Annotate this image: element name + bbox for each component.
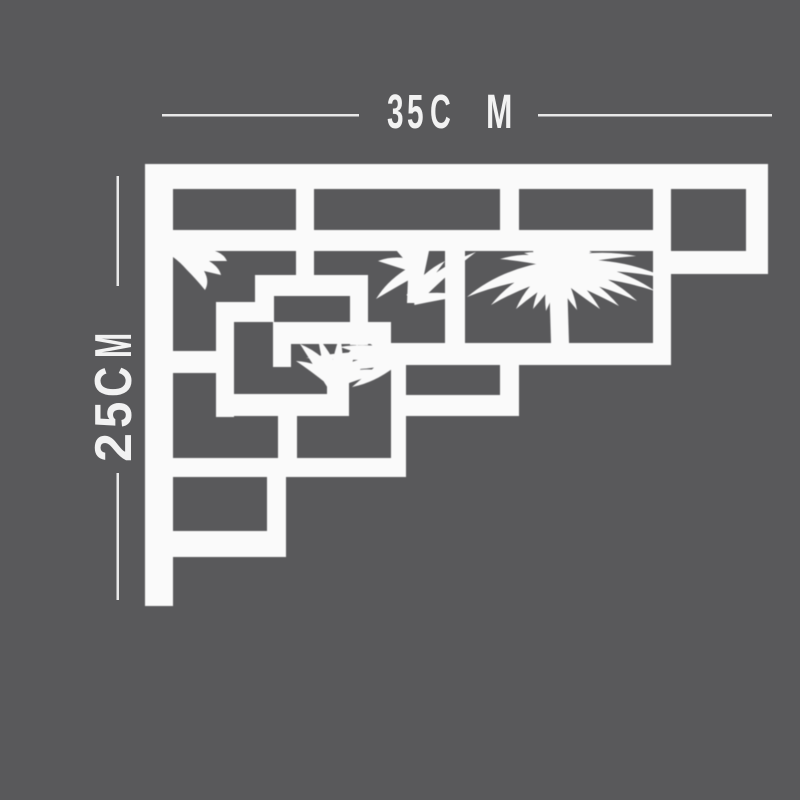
svg-text:2: 2 bbox=[85, 433, 143, 462]
svg-text:5: 5 bbox=[407, 86, 424, 139]
svg-text:M: M bbox=[86, 333, 143, 358]
svg-text:C: C bbox=[430, 86, 451, 139]
svg-text:C: C bbox=[85, 367, 143, 397]
svg-text:M: M bbox=[486, 84, 512, 138]
svg-text:3: 3 bbox=[387, 86, 404, 139]
svg-text:5: 5 bbox=[84, 402, 143, 428]
